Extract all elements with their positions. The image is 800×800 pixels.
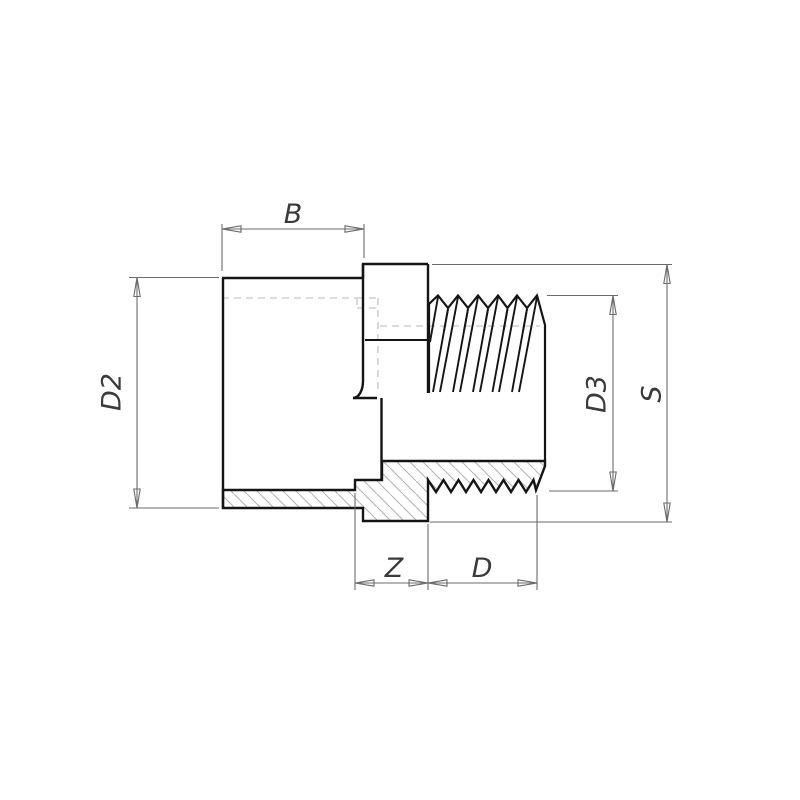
label-D3: D3 bbox=[581, 375, 612, 413]
label-Z: Z bbox=[384, 553, 404, 584]
adapter-half-section-drawing: B D2 D3 S Z D bbox=[0, 0, 800, 800]
section-hatch-region bbox=[223, 461, 545, 521]
label-D2: D2 bbox=[96, 373, 127, 411]
dimension-labels: B D2 D3 S Z D bbox=[96, 199, 667, 584]
label-B: B bbox=[284, 199, 303, 230]
thread-flank-lines bbox=[430, 297, 537, 392]
drawing-canvas: B D2 D3 S Z D bbox=[0, 0, 800, 800]
hidden-bore-lines bbox=[222, 298, 540, 390]
label-S: S bbox=[636, 385, 667, 402]
dimension-D2 bbox=[129, 278, 219, 509]
dimension-B bbox=[222, 224, 364, 271]
label-D: D bbox=[472, 553, 493, 584]
